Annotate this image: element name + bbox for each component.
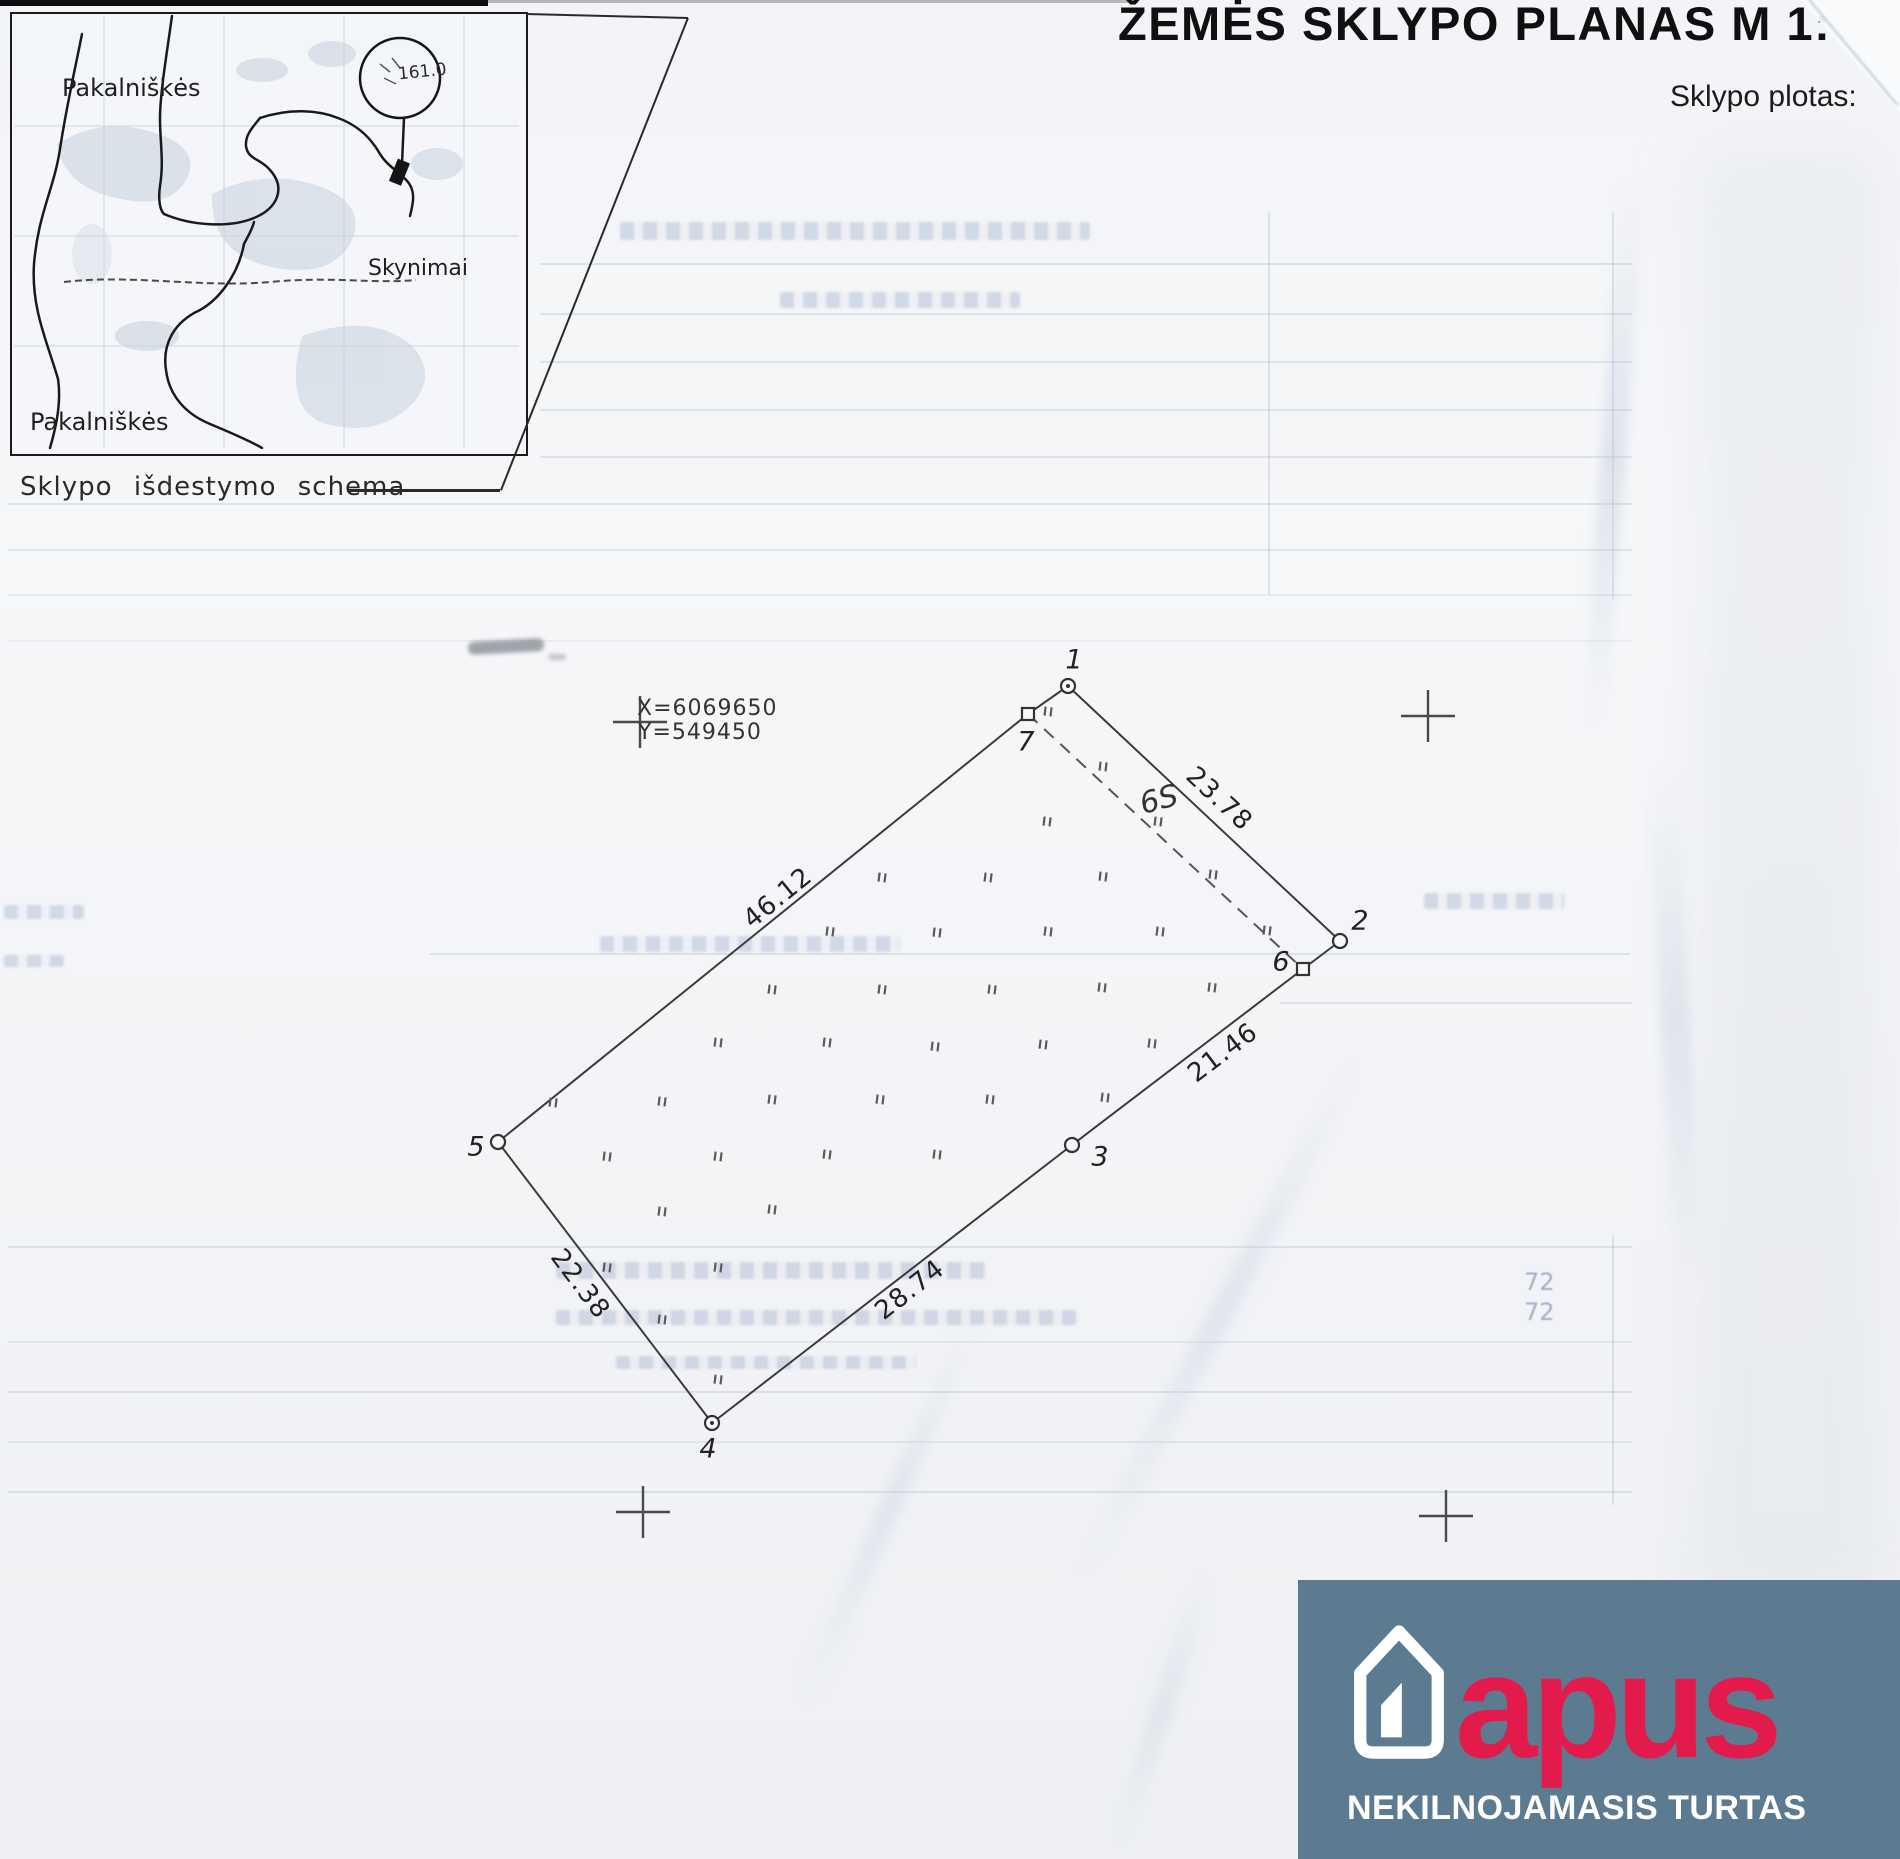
bleedthrough-line [540,409,1632,411]
bleedthrough-line [1612,212,1614,600]
bleedthrough-text [620,222,1090,240]
boundary-edge [712,1145,1072,1423]
map-road [64,279,416,283]
vertex-marker-2 [1333,934,1347,948]
vertex-label-7: 7 [1017,727,1034,758]
bleedthrough-line [8,503,1632,505]
plot-area-label: Sklypo plotas: [1670,80,1857,114]
landuse-tick-mark [989,985,996,995]
landuse-tick-mark [1209,983,1216,993]
map-caption: Sklypo išdestymo schema [20,472,405,502]
landuse-tick-mark [932,1042,939,1052]
landuse-tick-mark [1100,762,1107,772]
bleedthrough-line [540,313,1632,315]
landuse-tick-mark [1102,1093,1109,1103]
paper-crease [1066,1030,1380,1590]
landuse-tick-mark [1099,983,1106,993]
bleedthrough-number: 72 [1524,1298,1555,1326]
fold-line [500,18,689,491]
ink-smudge [468,638,545,655]
bleedthrough-line [8,1441,1632,1443]
caption-rule [348,489,500,492]
zone-6s-label: 6S [1136,778,1182,822]
boundary-edge [1028,686,1068,714]
bleedthrough-line [8,1491,1632,1493]
vertex-label-2: 2 [1351,906,1368,937]
landuse-tick-mark [879,985,886,995]
bleedthrough-text [4,905,84,919]
boundary-edge [1068,686,1340,941]
landuse-tick-mark [1157,927,1164,937]
landuse-tick-mark [604,1152,611,1162]
landuse-tick-mark [659,1097,666,1107]
vertex-label-6: 6 [1272,947,1289,978]
landuse-tick-mark [1149,1039,1156,1049]
vertex-marker-dot-4 [710,1421,714,1425]
edge-length-label: 23.78 [1180,761,1259,837]
landuse-tick-mark [877,1095,884,1105]
bleedthrough-line [540,361,1632,363]
scanner-edge-artifact [0,0,488,6]
landuse-tick-mark [824,1150,831,1160]
bleedthrough-line [8,1341,1632,1343]
landuse-tick-mark [715,1375,722,1385]
bleedthrough-line [540,263,1632,265]
page-title: ŽEMĖS SKLYPO PLANAS M 1: [1118,0,1831,51]
landuse-tick-mark [769,1095,776,1105]
landuse-tick-mark [550,1098,557,1108]
map-label-skynimai: Skynimai [368,256,468,281]
vertex-marker-dot-1 [1066,684,1070,688]
landuse-tick-mark [985,873,992,883]
bleedthrough-text [556,1310,1076,1325]
bleedthrough-line [1280,1002,1632,1004]
landuse-tick-mark [1044,817,1051,827]
landuse-tick-mark [987,1095,994,1105]
landuse-tick-mark [769,985,776,995]
landuse-tick-mark [827,927,834,937]
bleedthrough-line [430,953,1630,955]
bleedthrough-line [8,594,1632,596]
bleedthrough-line [540,456,1632,458]
landuse-tick-mark [1045,707,1052,717]
bleedthrough-line [8,1391,1632,1393]
landuse-tick-mark [1040,1040,1047,1050]
landuse-tick-mark [769,1205,776,1215]
paper-shadow [1700,150,1880,1600]
landuse-tick-mark [1210,870,1217,880]
bleedthrough-number: 72 [1524,1268,1555,1296]
landuse-tick-mark [934,928,941,938]
coordinate-x-label: X=6069650 [637,696,777,721]
bleedthrough-text [616,1356,916,1369]
landuse-tick-mark [659,1207,666,1217]
boundary-edge [498,714,1028,1142]
brand-name: apus [1455,1633,1776,1781]
map-label-pakalniskes-top: Pakalniškės [62,74,201,102]
vertex-label-3: 3 [1091,1142,1108,1173]
landuse-tick-mark [824,1038,831,1048]
boundary-edge [1303,941,1340,969]
landuse-tick-mark [1100,872,1107,882]
vertex-label-5: 5 [467,1132,484,1163]
brand-tagline: NEKILNOJAMASIS TURTAS [1347,1789,1806,1828]
paper-crease [1104,1564,1220,1857]
edge-length-label: 46.12 [738,861,819,934]
edge-length-label: 21.46 [1182,1017,1263,1089]
landuse-tick-mark [1045,927,1052,937]
vertex-label-4: 4 [699,1434,716,1465]
bleedthrough-text [556,1262,986,1279]
bleedthrough-line [8,549,1632,551]
landuse-tick-mark [715,1152,722,1162]
landuse-tick-mark [934,1150,941,1160]
bleedthrough-line [1268,212,1270,594]
bleedthrough-text [780,292,1020,308]
vertex-marker-5 [491,1135,505,1149]
vertex-marker-6 [1297,963,1309,975]
landuse-tick-mark [1264,926,1271,936]
bleedthrough-text [1424,893,1564,909]
map-label-pakalniskes-bottom: Pakalniškės [30,408,169,436]
vertex-marker-4 [705,1416,719,1430]
vertex-label-1: 1 [1065,645,1082,676]
bleedthrough-text [4,955,64,967]
landuse-tick-mark [1155,817,1162,827]
boundary-edge [1072,969,1303,1145]
ink-smudge [548,654,566,660]
scanned-land-plot-plan-page: 72 72 [0,0,1900,1859]
bleedthrough-line [1612,1235,1614,1505]
coordinate-y-label: Y=549450 [638,720,762,745]
vertex-marker-7 [1022,708,1034,720]
landuse-tick-mark [715,1038,722,1048]
vertex-marker-3 [1065,1138,1079,1152]
landuse-tick-mark [879,873,886,883]
scanner-edge-artifact [488,0,1138,3]
zone-divider-dashed-line [1028,714,1303,969]
paper-crease [1646,760,1703,1281]
fold-line [526,13,688,19]
boundary-edge [498,1142,712,1423]
bleedthrough-text [600,936,900,952]
bleedthrough-line [8,640,1632,642]
bleedthrough-line [8,1246,1632,1248]
house-icon [1347,1620,1451,1766]
vertex-marker-1 [1061,679,1075,693]
